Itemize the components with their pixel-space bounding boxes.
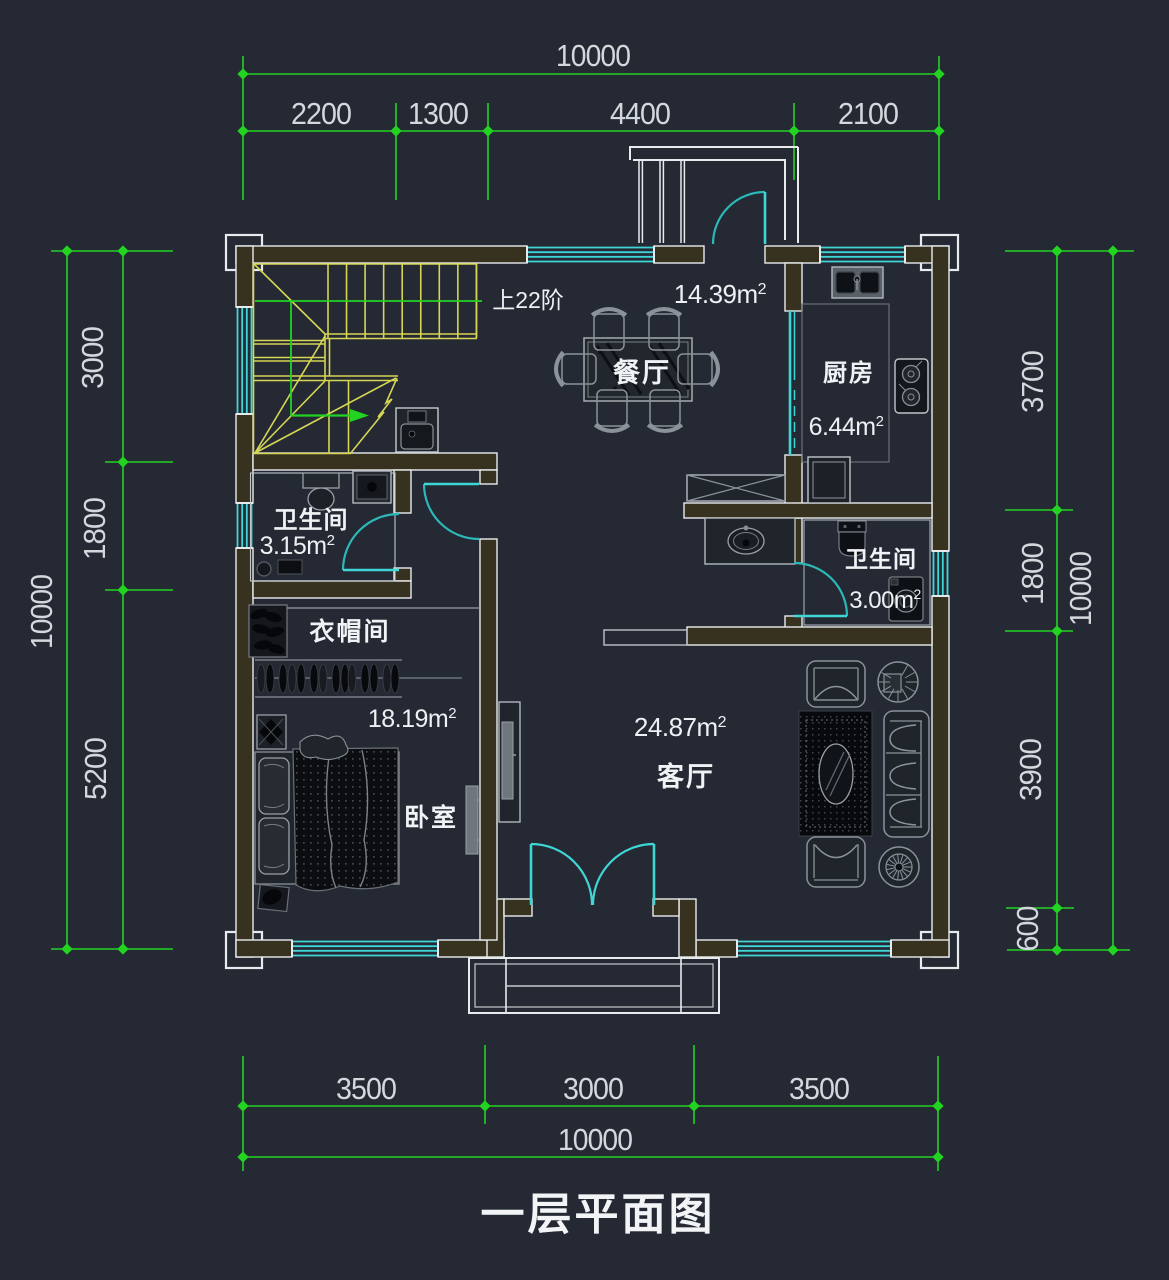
svg-text:3700: 3700 bbox=[1015, 350, 1050, 413]
svg-text:10000: 10000 bbox=[558, 1122, 633, 1157]
svg-text:2200: 2200 bbox=[291, 96, 352, 131]
svg-text:3000: 3000 bbox=[75, 326, 110, 389]
svg-text:10000: 10000 bbox=[1063, 551, 1098, 626]
svg-text:3000: 3000 bbox=[563, 1071, 624, 1106]
svg-text:3.15m2: 3.15m2 bbox=[260, 532, 335, 560]
svg-text:3500: 3500 bbox=[789, 1071, 850, 1106]
svg-text:餐厅: 餐厅 bbox=[613, 358, 671, 388]
svg-text:衣帽间: 衣帽间 bbox=[309, 617, 390, 646]
svg-text:卧室: 卧室 bbox=[404, 803, 458, 832]
svg-text:5200: 5200 bbox=[78, 737, 113, 800]
svg-text:客厅: 客厅 bbox=[657, 761, 715, 792]
svg-text:2100: 2100 bbox=[838, 96, 899, 131]
svg-text:6.44m2: 6.44m2 bbox=[809, 413, 884, 441]
svg-text:1800: 1800 bbox=[77, 497, 112, 560]
svg-text:10000: 10000 bbox=[556, 38, 631, 73]
svg-text:14.39m2: 14.39m2 bbox=[674, 279, 767, 309]
svg-text:上22阶: 上22阶 bbox=[492, 287, 564, 313]
svg-text:18.19m2: 18.19m2 bbox=[368, 705, 456, 733]
svg-text:1800: 1800 bbox=[1015, 542, 1050, 605]
svg-text:600: 600 bbox=[1010, 906, 1045, 952]
svg-text:卫生间: 卫生间 bbox=[274, 507, 349, 534]
svg-text:一层平面图: 一层平面图 bbox=[481, 1190, 716, 1239]
svg-text:卫生间: 卫生间 bbox=[845, 546, 917, 572]
svg-text:3900: 3900 bbox=[1013, 738, 1048, 801]
svg-text:24.87m2: 24.87m2 bbox=[634, 712, 727, 742]
svg-text:3.00m2: 3.00m2 bbox=[849, 586, 921, 614]
svg-text:10000: 10000 bbox=[24, 574, 59, 649]
svg-text:4400: 4400 bbox=[610, 96, 671, 131]
svg-text:厨房: 厨房 bbox=[823, 359, 875, 387]
svg-text:3500: 3500 bbox=[336, 1071, 397, 1106]
svg-text:1300: 1300 bbox=[408, 96, 469, 131]
